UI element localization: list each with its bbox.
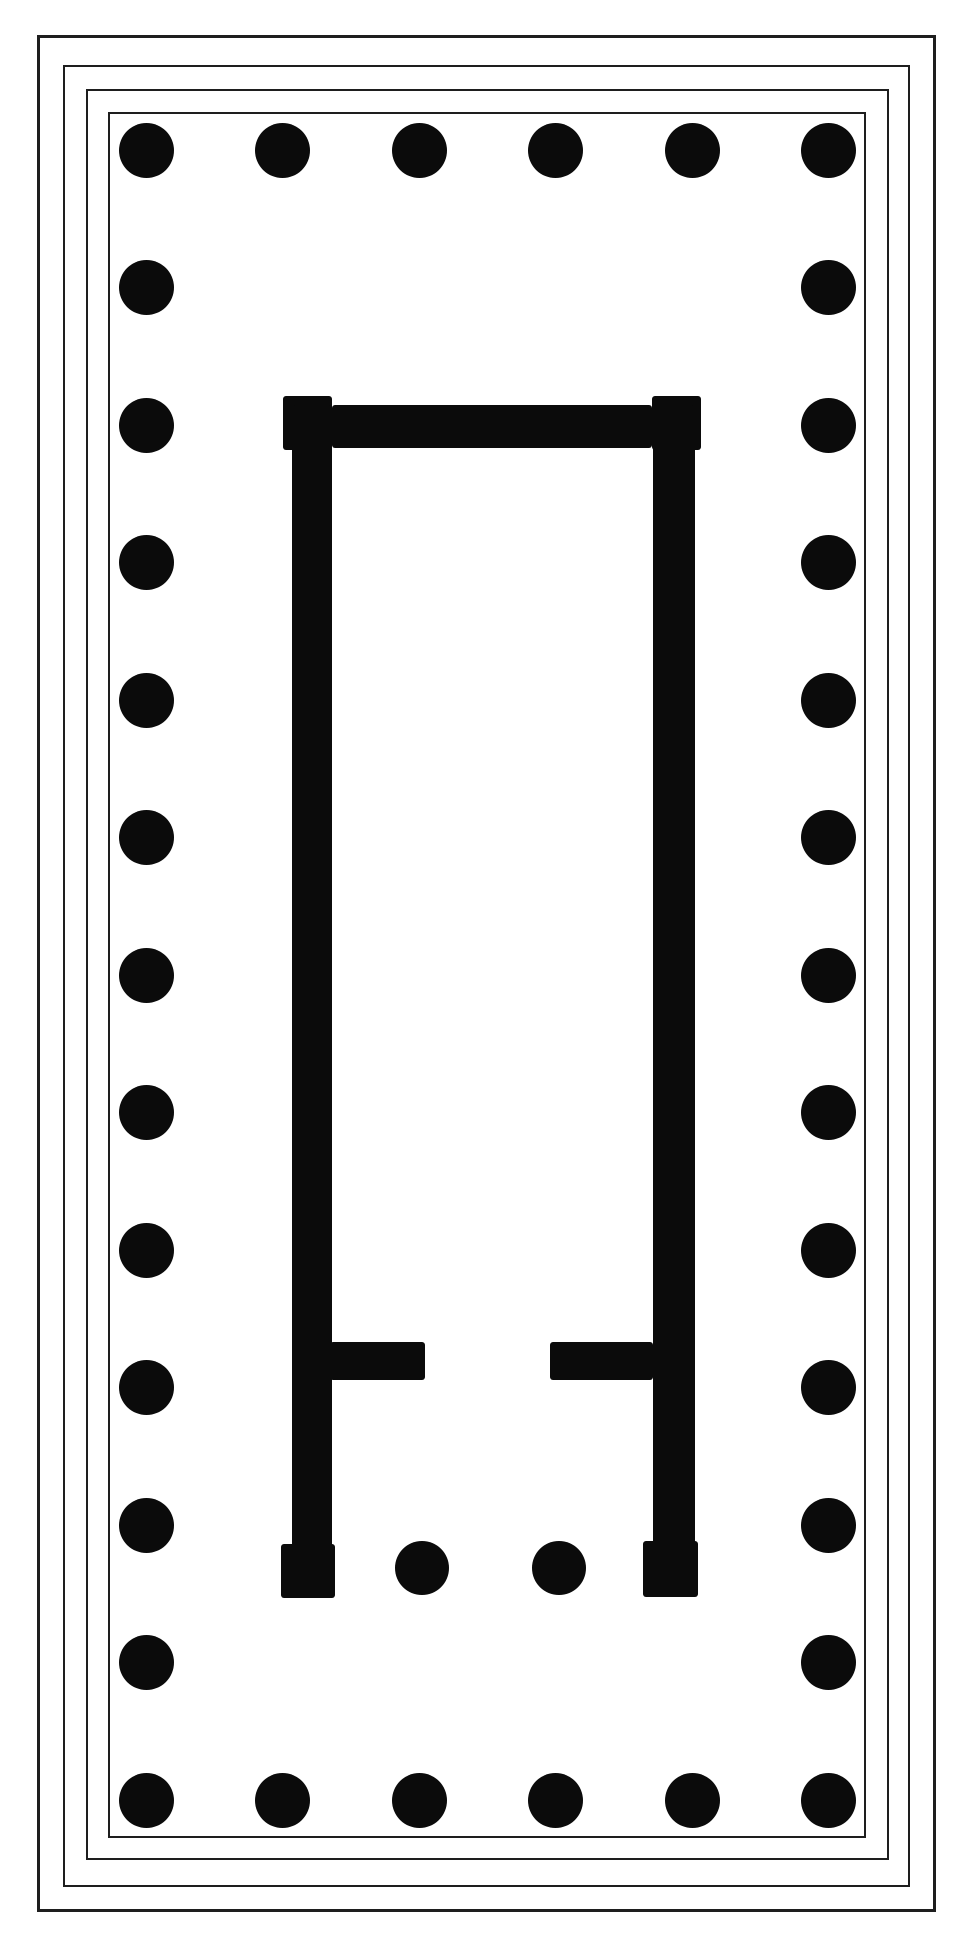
anta-southeast <box>643 1541 698 1597</box>
peristyle-column <box>119 1223 174 1278</box>
peristyle-column <box>119 1635 174 1690</box>
pronaos-column-in-antis <box>532 1541 586 1595</box>
peristyle-column <box>528 123 583 178</box>
peristyle-column <box>801 535 856 590</box>
peristyle-column <box>528 1773 583 1828</box>
peristyle-column <box>119 535 174 590</box>
peristyle-column <box>801 673 856 728</box>
pronaos-column-in-antis <box>395 1541 449 1595</box>
temple-floor-plan <box>0 0 968 1945</box>
cella-north-wall <box>332 405 652 448</box>
step-rect-stylobate <box>108 112 866 1838</box>
peristyle-column <box>392 123 447 178</box>
peristyle-column <box>119 260 174 315</box>
cella-west-wall <box>292 405 332 1597</box>
anta-southwest <box>281 1544 335 1598</box>
peristyle-column <box>801 810 856 865</box>
peristyle-column <box>801 1360 856 1415</box>
peristyle-column <box>255 1773 310 1828</box>
peristyle-column <box>119 1498 174 1553</box>
cella-east-wall <box>653 405 695 1597</box>
peristyle-column <box>801 123 856 178</box>
peristyle-column <box>119 810 174 865</box>
peristyle-column <box>119 398 174 453</box>
peristyle-column <box>119 123 174 178</box>
peristyle-column <box>119 673 174 728</box>
peristyle-column <box>801 948 856 1003</box>
pronaos-spur-wall-west <box>330 1342 425 1380</box>
peristyle-column <box>801 1085 856 1140</box>
peristyle-column <box>255 123 310 178</box>
peristyle-column <box>801 1773 856 1828</box>
peristyle-column <box>392 1773 447 1828</box>
peristyle-column <box>119 1773 174 1828</box>
peristyle-column <box>665 1773 720 1828</box>
peristyle-column <box>119 1360 174 1415</box>
peristyle-column <box>801 1223 856 1278</box>
peristyle-column <box>801 1498 856 1553</box>
pronaos-spur-wall-east <box>550 1342 653 1380</box>
peristyle-column <box>801 260 856 315</box>
peristyle-column <box>801 1635 856 1690</box>
peristyle-column <box>665 123 720 178</box>
peristyle-column <box>801 398 856 453</box>
peristyle-column <box>119 1085 174 1140</box>
peristyle-column <box>119 948 174 1003</box>
